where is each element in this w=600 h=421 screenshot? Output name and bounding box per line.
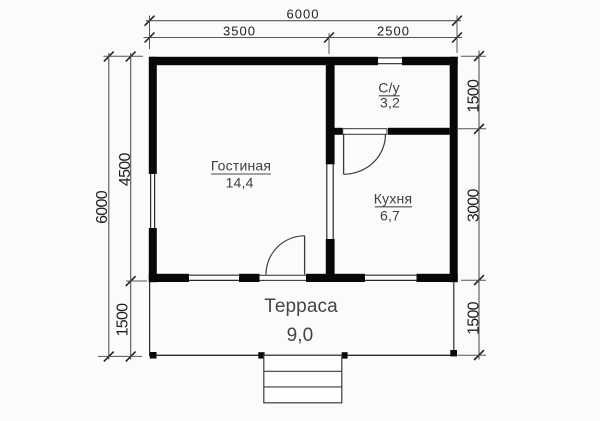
svg-text:3500: 3500 [223,23,256,38]
svg-text:2500: 2500 [377,23,410,38]
svg-text:4500: 4500 [117,153,134,187]
svg-text:6000: 6000 [94,190,111,224]
svg-text:14,4: 14,4 [226,174,254,190]
svg-text:Кухня: Кухня [374,191,412,207]
svg-text:1500: 1500 [114,303,131,337]
svg-text:3,2: 3,2 [380,95,400,111]
svg-text:6000: 6000 [287,6,320,21]
svg-text:1500: 1500 [465,79,482,113]
svg-text:Терраса: Терраса [264,296,338,317]
svg-text:6,7: 6,7 [380,207,400,223]
svg-text:9,0: 9,0 [287,325,314,346]
svg-text:1500: 1500 [465,301,482,335]
svg-text:С/у: С/у [378,79,400,95]
svg-text:Гостиная: Гостиная [211,158,271,174]
svg-text:3000: 3000 [465,189,482,223]
